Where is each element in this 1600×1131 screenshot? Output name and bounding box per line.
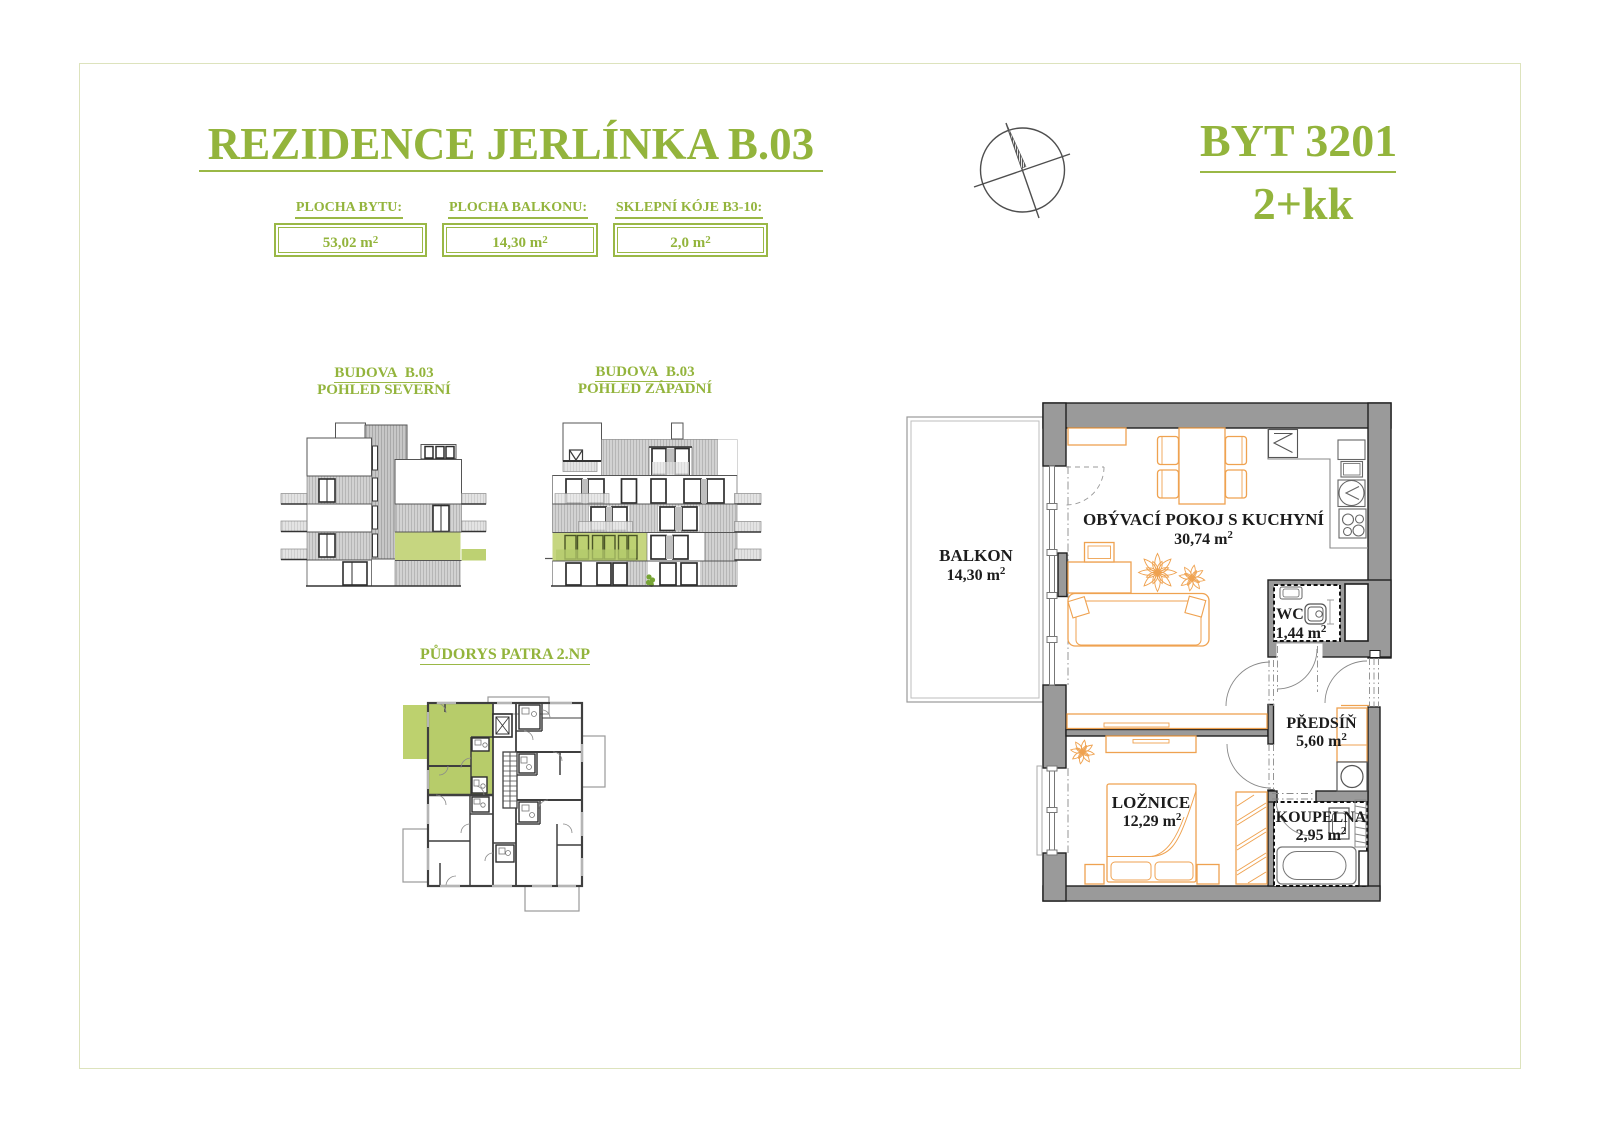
svg-text:PŘEDSÍŇ: PŘEDSÍŇ [1286, 713, 1357, 732]
svg-text:BALKON: BALKON [939, 546, 1013, 565]
svg-text:KOUPELNA: KOUPELNA [1276, 809, 1367, 826]
svg-text:1,44 m2: 1,44 m2 [1276, 623, 1327, 642]
svg-text:2,95 m2: 2,95 m2 [1296, 825, 1347, 844]
svg-text:30,74 m2: 30,74 m2 [1174, 529, 1233, 548]
svg-text:5,60 m2: 5,60 m2 [1296, 731, 1347, 750]
svg-text:WC: WC [1276, 606, 1304, 623]
svg-text:LOŽNICE: LOŽNICE [1112, 793, 1190, 812]
svg-text:14,30 m2: 14,30 m2 [947, 565, 1006, 584]
svg-text:OBÝVACÍ POKOJ S KUCHYNÍ: OBÝVACÍ POKOJ S KUCHYNÍ [1083, 510, 1324, 529]
svg-text:12,29 m2: 12,29 m2 [1123, 811, 1182, 830]
